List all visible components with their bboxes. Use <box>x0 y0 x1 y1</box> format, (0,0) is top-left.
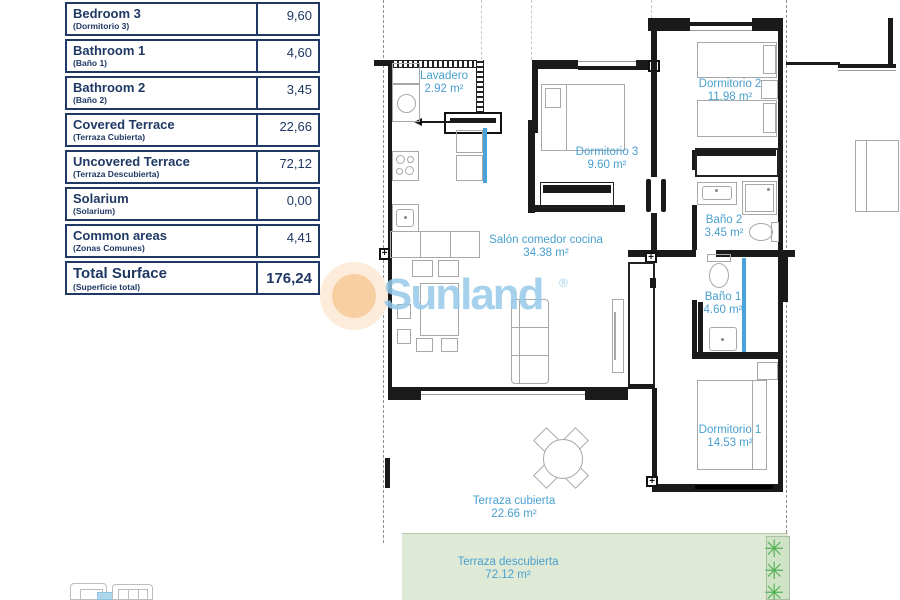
mini-plan-line <box>128 590 129 600</box>
appliance <box>392 63 420 84</box>
table-row: Solarium(Solarium) 0,00 <box>65 187 320 221</box>
door-leaf <box>698 302 703 354</box>
registered-mark: ® <box>559 276 568 290</box>
wall <box>652 388 657 486</box>
faucet-dot <box>721 338 724 341</box>
row-value: 72,12 <box>258 152 318 182</box>
washing-machine-drum <box>397 94 416 113</box>
wall <box>786 62 840 65</box>
window <box>690 30 752 31</box>
counter-divider <box>420 232 421 257</box>
total-label-en: Total Surface <box>73 265 252 282</box>
room-label-lavadero: Lavadero2.92 m² <box>420 70 468 96</box>
wall <box>528 120 535 213</box>
wall <box>692 205 697 250</box>
sofa-cushion-line <box>512 327 548 328</box>
table-row-total: Total Surface(Superficie total) 176,24 <box>65 261 320 295</box>
row-label-es: (Baño 2) <box>73 95 252 106</box>
wall <box>783 250 795 257</box>
toilet <box>709 263 729 288</box>
toilet-tank <box>707 254 731 262</box>
mini-plan-highlight <box>97 592 113 600</box>
furniture-line <box>866 141 867 211</box>
wall <box>783 257 788 302</box>
chair <box>416 338 433 352</box>
row-label-en: Bedroom 3 <box>73 6 252 21</box>
wall <box>692 352 783 359</box>
window <box>838 70 896 71</box>
burner-icon <box>405 166 414 175</box>
room-label-bano-2: Baño 23.45 m² <box>705 214 744 240</box>
table-row: Common areas(Zonas Comunes) 4,41 <box>65 224 320 258</box>
mini-plan-room <box>118 589 148 600</box>
wall-hatched <box>476 60 484 118</box>
row-label-en: Bathroom 1 <box>73 43 252 58</box>
row-label-es: (Terraza Descubierta) <box>73 169 252 180</box>
row-value: 22,66 <box>258 115 318 145</box>
pillow <box>763 103 776 133</box>
wall <box>374 60 388 66</box>
wall <box>385 458 390 488</box>
sun-icon <box>332 274 376 318</box>
nightstand <box>757 362 778 380</box>
room-label-salon: Salón comedor cocina34.38 m² <box>489 234 603 260</box>
door-jamb <box>661 179 666 212</box>
glass-partition <box>483 128 487 183</box>
pillow <box>763 45 776 74</box>
chair <box>441 338 458 352</box>
row-value: 9,60 <box>258 4 318 34</box>
row-value: 4,41 <box>258 226 318 256</box>
room-label-terraza-cubierta: Terraza cubierta22.66 m² <box>473 495 555 521</box>
hall-closet <box>456 130 483 153</box>
row-label-es: (Zonas Comunes) <box>73 243 252 254</box>
burner-icon <box>407 156 414 163</box>
drain-dot <box>767 188 770 191</box>
window-bar <box>690 22 752 26</box>
faucet-dot <box>715 189 718 192</box>
pillar-icon: + <box>646 476 658 487</box>
nightstand <box>761 80 778 99</box>
sofa-cushion-line <box>512 355 548 356</box>
wall <box>651 20 657 177</box>
row-label-en: Common areas <box>73 228 252 243</box>
wall <box>692 300 697 354</box>
row-value: 0,00 <box>258 189 318 219</box>
room-label-bano-1: Baño 14.60 m² <box>704 291 743 317</box>
wall <box>532 60 578 69</box>
guide-line <box>651 0 652 18</box>
row-label-en: Solarium <box>73 191 252 206</box>
total-value: 176,24 <box>258 263 318 293</box>
wall <box>388 387 421 400</box>
row-label-es: (Terraza Cubierta) <box>73 132 252 143</box>
wall <box>628 250 696 257</box>
wall <box>888 18 893 68</box>
table-row: Bathroom 1(Baño 1) 4,60 <box>65 39 320 73</box>
table-row: Bedroom 3(Dormitorio 3) 9,60 <box>65 2 320 36</box>
faucet-dot <box>404 216 407 219</box>
table-row: Covered Terrace(Terraza Cubierta) 22,66 <box>65 113 320 147</box>
row-label-es: (Dormitorio 3) <box>73 21 252 32</box>
mini-plan-line <box>138 590 139 600</box>
burner-icon <box>396 168 403 175</box>
window-bar <box>421 387 587 391</box>
total-label-es: (Superficie total) <box>73 282 252 293</box>
row-value: 4,60 <box>258 41 318 71</box>
guide-line <box>531 0 532 60</box>
burner-icon <box>396 155 405 164</box>
row-label-en: Covered Terrace <box>73 117 252 132</box>
room-label-dormitorio-2: Dormitorio 211.98 m² <box>699 78 762 104</box>
surface-table: Bedroom 3(Dormitorio 3) 9,60 Bathroom 1(… <box>65 2 320 295</box>
row-value: 3,45 <box>258 78 318 108</box>
brand-logo: Sunland <box>383 270 543 320</box>
table-row: Bathroom 2(Baño 2) 3,45 <box>65 76 320 110</box>
pillar-icon: + <box>379 248 390 260</box>
wall <box>628 384 655 389</box>
window <box>578 61 638 62</box>
row-label-en: Uncovered Terrace <box>73 154 252 169</box>
table-row: Uncovered Terrace(Terraza Descubierta) 7… <box>65 150 320 184</box>
terrace-round-table <box>543 439 583 479</box>
plant-icon: ✳ <box>764 582 784 600</box>
stove <box>392 151 419 181</box>
toilet-tank <box>771 222 779 242</box>
wall <box>650 278 656 288</box>
pillow <box>545 88 561 108</box>
neighbour-bed <box>855 140 899 212</box>
kitchen-counter <box>390 231 480 258</box>
window-bar <box>695 485 773 489</box>
furniture-line <box>566 85 567 150</box>
wall <box>648 18 690 31</box>
floorplan-page: Bedroom 3(Dormitorio 3) 9,60 Bathroom 1(… <box>0 0 900 600</box>
toilet <box>749 223 773 241</box>
row-label-es: (Solarium) <box>73 206 252 217</box>
entrance-arrow-icon <box>422 121 450 123</box>
window <box>421 394 587 395</box>
entrance-door-bar <box>450 118 496 123</box>
room-label-dormitorio-1: Dormitorio 114.53 m² <box>699 424 762 450</box>
door-jamb <box>646 179 651 212</box>
room-label-terraza-descubierta: Terraza descubierta72.12 m² <box>458 556 559 582</box>
counter-divider <box>450 232 451 257</box>
hall-closet <box>456 155 483 181</box>
wardrobe-bar <box>543 185 611 193</box>
window-bar <box>578 66 638 70</box>
tv <box>614 312 616 360</box>
room-label-dormitorio-3: Dormitorio 39.60 m² <box>576 146 639 172</box>
wall <box>585 387 628 400</box>
chair <box>397 329 411 344</box>
shower-screen <box>742 258 746 352</box>
row-label-es: (Baño 1) <box>73 58 252 69</box>
row-label-en: Bathroom 2 <box>73 80 252 95</box>
wall <box>651 213 657 250</box>
guide-line <box>481 0 482 60</box>
wardrobe-bar <box>697 150 776 156</box>
